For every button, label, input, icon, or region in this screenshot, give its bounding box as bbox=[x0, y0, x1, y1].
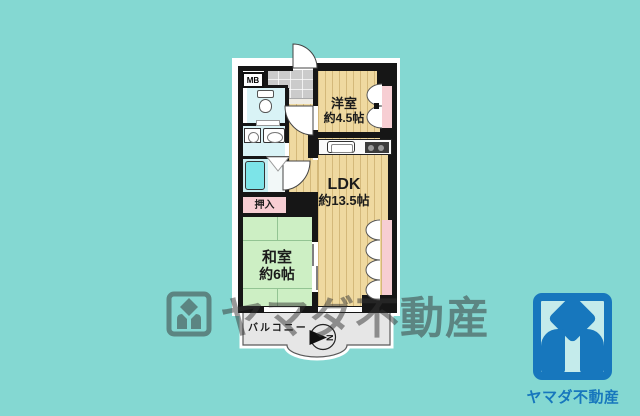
western-room-name: 洋室 bbox=[312, 97, 376, 112]
western-room-closet-back bbox=[382, 84, 392, 128]
kitchen-sink bbox=[327, 141, 355, 153]
wall-segment bbox=[377, 63, 397, 86]
wall-segment bbox=[238, 213, 290, 217]
wall-segment bbox=[238, 192, 290, 197]
tatami-line bbox=[277, 217, 278, 240]
washing-machine-drum bbox=[248, 132, 259, 143]
company-logo-petal-left bbox=[541, 329, 565, 373]
wall-segment bbox=[264, 70, 268, 87]
western-room-label: 洋室 約4.5帖 bbox=[312, 97, 376, 126]
western-room-size: 約4.5帖 bbox=[312, 112, 376, 126]
washing-machine bbox=[244, 128, 261, 143]
kitchen-stove bbox=[365, 142, 389, 153]
japanese-room-name: 和室 bbox=[245, 249, 309, 266]
meter-box: MB bbox=[242, 72, 264, 88]
wall-segment bbox=[316, 132, 382, 138]
wall-segment bbox=[312, 217, 318, 242]
floor-plan-image: MB N 洋室 約4.5帖 LDK 約13.5帖 和室 約6帖 押入 バルコニー bbox=[0, 0, 640, 416]
kitchen-sink-basin bbox=[331, 144, 353, 153]
company-logo-petal-right bbox=[580, 329, 604, 373]
wash-basin bbox=[263, 128, 285, 143]
meter-box-label: MB bbox=[247, 76, 259, 85]
wall-segment bbox=[285, 88, 289, 192]
wall-segment bbox=[240, 156, 288, 159]
watermark: ヤマダ不動産 bbox=[166, 286, 496, 342]
stove-burner bbox=[378, 145, 384, 151]
oshiire-label: 押入 bbox=[243, 200, 286, 212]
tatami-line bbox=[243, 240, 312, 241]
toilet-bowl bbox=[259, 99, 272, 113]
bathtub bbox=[245, 161, 265, 190]
japanese-room-label: 和室 約6帖 bbox=[245, 249, 309, 282]
ldk-size: 約13.5帖 bbox=[312, 194, 376, 209]
wall-segment bbox=[392, 86, 397, 128]
wall-segment bbox=[388, 155, 397, 220]
japanese-room-size: 約6帖 bbox=[245, 266, 309, 282]
toilet-tank bbox=[257, 90, 274, 98]
wash-basin-bowl bbox=[267, 132, 283, 143]
stove-burner bbox=[368, 145, 374, 151]
toilet-door bbox=[256, 120, 280, 126]
company-logo-text: ヤマダ不動産 bbox=[525, 386, 621, 407]
wall-segment bbox=[238, 66, 243, 313]
wall-segment bbox=[317, 63, 383, 71]
ldk-label: LDK 約13.5帖 bbox=[312, 176, 376, 209]
ldk-name: LDK bbox=[312, 176, 376, 194]
washroom-door bbox=[285, 143, 289, 156]
watermark-logo-icon bbox=[166, 291, 212, 337]
watermark-text: ヤマダ不動産 bbox=[220, 282, 490, 346]
